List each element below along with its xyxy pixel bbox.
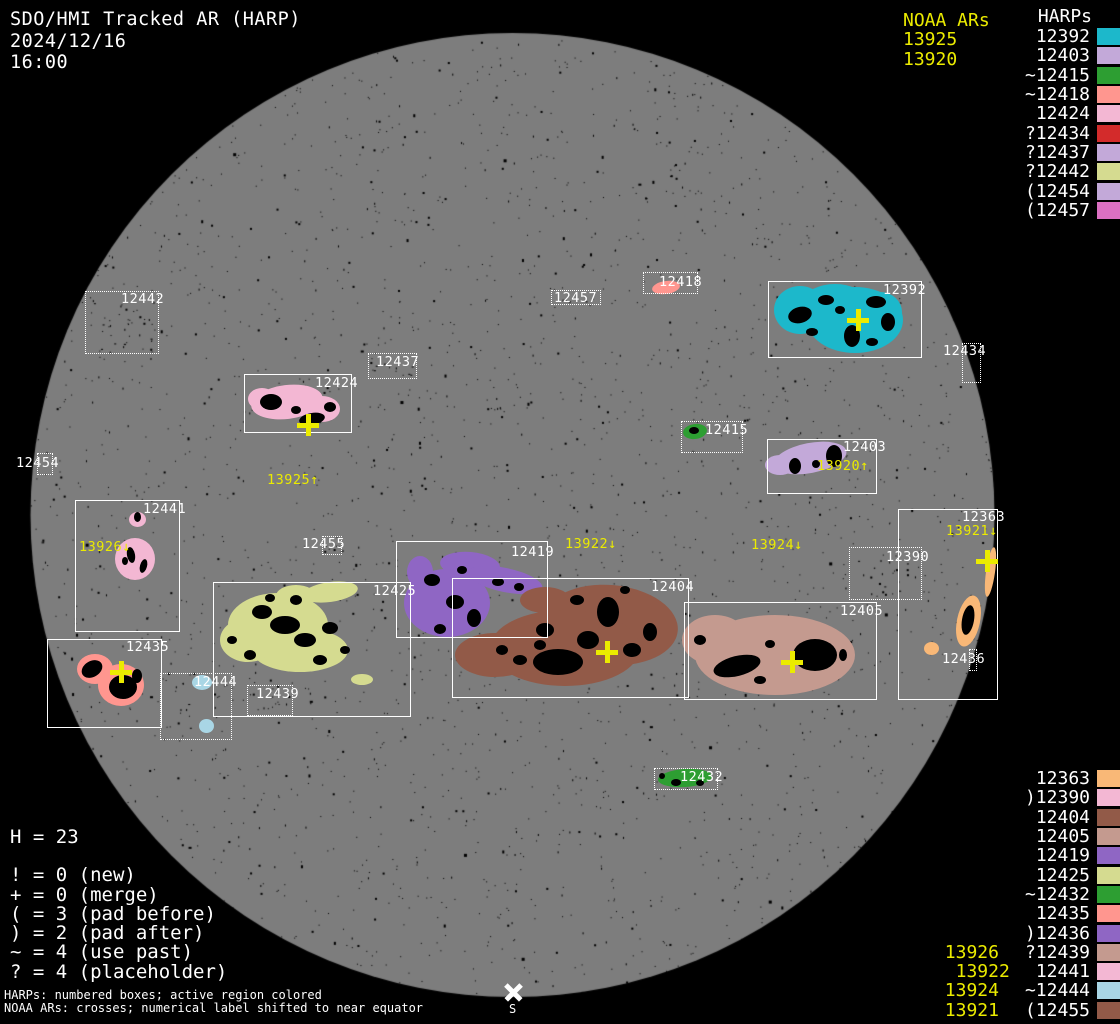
noaa-cross-icon [847, 309, 869, 331]
harp-legend-label: ~12444 [1025, 980, 1090, 1001]
stat-line: ~ = 4 (use past) [10, 943, 227, 962]
harp-number-label-12434: 12434 [943, 345, 986, 358]
noaa-ar-number: 13926 [945, 942, 999, 963]
legend-top-row-12442: ?12442 [1025, 162, 1120, 181]
legend-bottom-row-12455: 13921(12455 [945, 1001, 1120, 1020]
harp-legend-label: 12441 [1036, 961, 1090, 982]
legend-bottom-row-12435: 12435 [945, 904, 1120, 923]
harp-number-label-12454: 12454 [16, 457, 59, 470]
harp-color-swatch [1097, 828, 1120, 845]
harp-legend-label: 12425 [1036, 865, 1090, 886]
harp-color-swatch [1097, 105, 1120, 122]
harp-legend-label: 12403 [1036, 45, 1090, 66]
footnote-line1: HARPs: numbered boxes; active region col… [4, 989, 423, 1002]
harp-number-label-12415: 12415 [705, 424, 748, 437]
harp-color-swatch [1097, 144, 1120, 161]
harp-legend-label: 12404 [1036, 807, 1090, 828]
harp-legend-label: ?12442 [1025, 161, 1090, 182]
harp-color-swatch [1097, 789, 1120, 806]
harp-color-swatch [1097, 125, 1120, 142]
legend-bottom-row-12405: 12405 [945, 827, 1120, 846]
noaa-map-label: 13920↑ [817, 460, 869, 473]
harp-number-label-12403: 12403 [843, 441, 886, 454]
harp-box-12425 [213, 582, 411, 717]
harp-legend-label: (12457 [1025, 200, 1090, 221]
harp-number-label-12441: 12441 [143, 503, 186, 516]
harp-legend-label: 12419 [1036, 845, 1090, 866]
legend-bottom-row-12425: 12425 [945, 865, 1120, 884]
harp-color-swatch [1097, 944, 1120, 961]
footnote-line2: NOAA ARs: crosses; numerical label shift… [4, 1002, 423, 1015]
harp-stats: H = 23 ! = 0 (new) + = 0 (merge) ( = 3 (… [10, 828, 227, 982]
harp-legend-label: 12392 [1036, 26, 1090, 47]
harp-legend-label: 12363 [1036, 768, 1090, 789]
harp-count: H = 23 [10, 828, 227, 847]
harp-legend-label: ~12418 [1025, 84, 1090, 105]
harp-color-swatch [1097, 886, 1120, 903]
harp-number-label-12437: 12437 [376, 356, 419, 369]
harp-color-swatch [1097, 809, 1120, 826]
south-label: S [509, 1002, 516, 1016]
harp-color-swatch [1097, 982, 1120, 999]
harp-color-swatch [1097, 963, 1120, 980]
harps-legend-top: HARPs 1239212403~12415~1241812424?12434?… [1025, 7, 1120, 220]
legend-bottom-row-12419: 12419 [945, 846, 1120, 865]
harp-number-label-12419: 12419 [511, 546, 554, 559]
harp-legend-label: 12405 [1036, 826, 1090, 847]
harp-color-swatch [1097, 86, 1120, 103]
south-pole-marker: S [503, 983, 525, 1015]
harp-color-swatch [1097, 847, 1120, 864]
harps-legend-bottom: 12363)1239012404124051241912425~12432124… [945, 769, 1120, 1020]
harp-number-label-12457: 12457 [554, 292, 597, 305]
harp-color-swatch [1097, 67, 1120, 84]
noaa-ar-number: 13921 [945, 1000, 999, 1021]
legend-top-row-12434: ?12434 [1025, 123, 1120, 142]
harp-number-label-12432: 12432 [680, 771, 723, 784]
harps-legend-bottom-rows: 12363)1239012404124051241912425~12432124… [945, 769, 1120, 1020]
harp-number-label-12439: 12439 [256, 688, 299, 701]
harp-number-label-12424: 12424 [315, 377, 358, 390]
legend-top-row-12424: 12424 [1025, 104, 1120, 123]
legend-bottom-row-12441: 1392212441 [945, 962, 1120, 981]
noaa-map-label: 13924↓ [751, 539, 803, 552]
harp-legend-label: ?12437 [1025, 142, 1090, 163]
harp-legend-label: )12436 [1025, 923, 1090, 944]
noaa-ar-number: 13924 [945, 980, 999, 1001]
harp-number-label-12392: 12392 [883, 284, 926, 297]
harp-number-label-12435: 12435 [126, 641, 169, 654]
noaa-cross-icon [976, 550, 998, 572]
time-label: 16:00 [10, 52, 301, 74]
harp-legend-label: ~12432 [1025, 884, 1090, 905]
legend-bottom-row-12436: )12436 [945, 923, 1120, 942]
legend-bottom-row-12363: 12363 [945, 769, 1120, 788]
legend-top-row-12457: (12457 [1025, 201, 1120, 220]
noaa-cross-icon [781, 651, 803, 673]
harp-number-label-12425: 12425 [373, 585, 416, 598]
legend-bottom-row-12404: 12404 [945, 808, 1120, 827]
harp-number-label-12442: 12442 [121, 293, 164, 306]
harp-color-swatch [1097, 867, 1120, 884]
harp-number-label-12418: 12418 [659, 276, 702, 289]
noaa-cross-icon [596, 641, 618, 663]
legend-top-row-12418: ~12418 [1025, 85, 1120, 104]
harp-color-swatch [1097, 163, 1120, 180]
legend-bottom-row-12390: )12390 [945, 788, 1120, 807]
noaa-map-label: 13922↓ [565, 538, 617, 551]
date-label: 2024/12/16 [10, 31, 301, 53]
harp-color-swatch [1097, 905, 1120, 922]
solar-harp-map: 1244212457124181239212434124371242412415… [0, 0, 1120, 1024]
legend-top-row-12437: ?12437 [1025, 143, 1120, 162]
header: SDO/HMI Tracked AR (HARP) 2024/12/16 16:… [10, 9, 301, 74]
harp-number-label-12405: 12405 [840, 605, 883, 618]
noaa-map-label: 13921↓ [946, 525, 998, 538]
noaa-cross-icon [297, 414, 319, 436]
harp-color-swatch [1097, 28, 1120, 45]
legend-bottom-row-12439: 13926?12439 [945, 943, 1120, 962]
harp-number-label-12455: 12455 [302, 538, 345, 551]
harp-legend-label: ~12415 [1025, 65, 1090, 86]
legend-top-row-12454: (12454 [1025, 181, 1120, 200]
harp-number-label-12404: 12404 [651, 581, 694, 594]
legend-top-row-12415: ~12415 [1025, 66, 1120, 85]
stat-line: ! = 0 (new) [10, 866, 227, 885]
noaa-map-label: 13925↑ [267, 474, 319, 487]
harp-color-swatch [1097, 47, 1120, 64]
page-title: SDO/HMI Tracked AR (HARP) [10, 9, 301, 31]
legend-bottom-row-12432: ~12432 [945, 885, 1120, 904]
harp-legend-label: 12424 [1036, 103, 1090, 124]
harp-color-swatch [1097, 770, 1120, 787]
harp-number-label-12436: 12436 [942, 653, 985, 666]
harps-title: HARPs [1025, 7, 1120, 27]
stat-line: + = 0 (merge) [10, 886, 227, 905]
harps-legend-top-rows: 1239212403~12415~1241812424?12434?12437?… [1025, 27, 1120, 220]
harp-number-label-12444: 12444 [194, 676, 237, 689]
harp-legend-label: (12455 [1025, 1000, 1090, 1021]
noaa-map-label: 13926↓ [79, 541, 131, 554]
noaa-ar-number: 13925 [903, 30, 990, 49]
harp-legend-label: (12454 [1025, 181, 1090, 202]
harp-color-swatch [1097, 183, 1120, 200]
noaa-ar-number: 13920 [903, 50, 990, 69]
harp-legend-label: 12435 [1036, 903, 1090, 924]
noaa-ars-legend: NOAA ARs 13925 13920 [903, 11, 990, 69]
harp-color-swatch [1097, 1002, 1120, 1019]
harp-box-12441 [75, 500, 180, 632]
harp-box-12404 [452, 578, 689, 698]
harp-legend-label: )12390 [1025, 787, 1090, 808]
footnote: HARPs: numbered boxes; active region col… [4, 989, 423, 1014]
harp-color-swatch [1097, 925, 1120, 942]
noaa-ar-number: 13922 [956, 961, 1010, 982]
noaa-cross-icon [110, 661, 132, 683]
legend-top-row-12392: 12392 [1025, 27, 1120, 46]
harp-legend-label: ?12434 [1025, 123, 1090, 144]
legend-top-row-12403: 12403 [1025, 46, 1120, 65]
noaa-ars-title: NOAA ARs [903, 11, 990, 30]
stat-line: ? = 4 (placeholder) [10, 963, 227, 982]
legend-bottom-row-12444: 13924~12444 [945, 981, 1120, 1000]
harp-legend-label: ?12439 [1025, 942, 1090, 963]
harp-color-swatch [1097, 202, 1120, 219]
